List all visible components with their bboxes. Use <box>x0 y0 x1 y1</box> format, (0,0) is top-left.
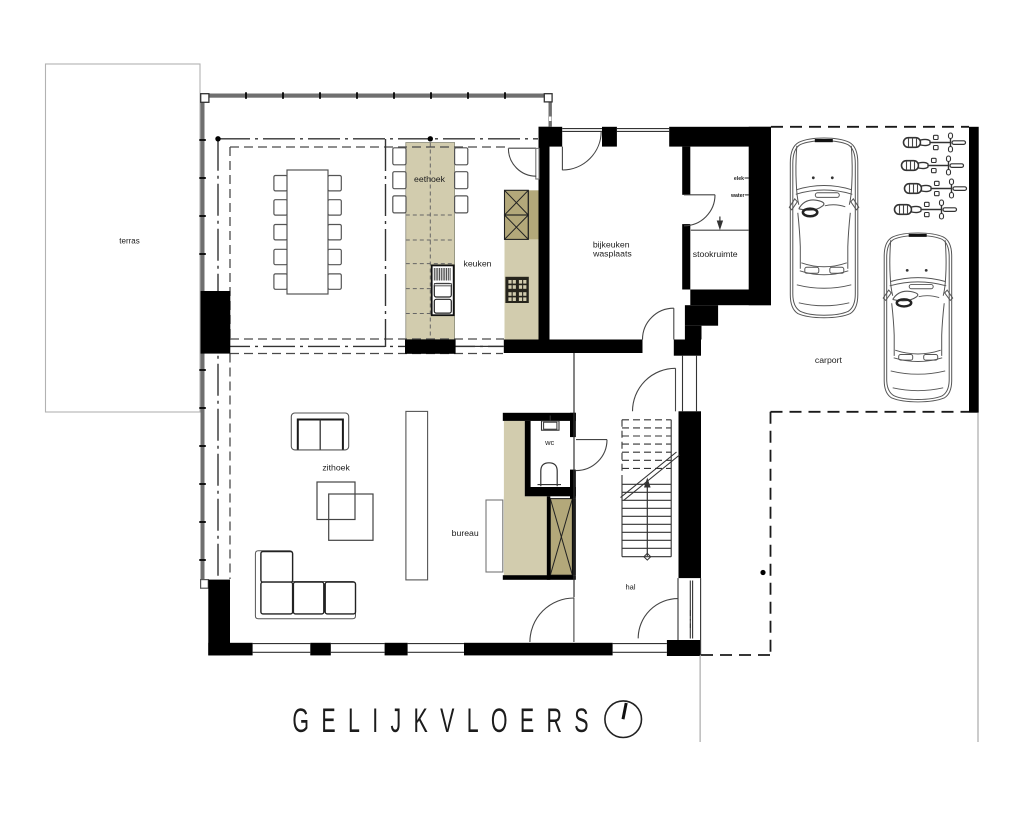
svg-text:carport: carport <box>815 355 843 365</box>
svg-text:zithoek: zithoek <box>322 462 350 472</box>
svg-text:wasplaats: wasplaats <box>592 249 632 259</box>
svg-text:elek: elek <box>734 176 744 182</box>
svg-text:terras: terras <box>119 237 139 246</box>
svg-text:water: water <box>730 193 745 199</box>
svg-text:stookruimte: stookruimte <box>693 249 738 259</box>
svg-text:wc: wc <box>544 438 554 447</box>
svg-text:GELIJKVLOERS: GELIJKVLOERS <box>292 702 600 740</box>
svg-text:hal: hal <box>625 583 635 592</box>
svg-text:eethoek: eethoek <box>414 174 446 184</box>
svg-text:bureau: bureau <box>452 528 479 538</box>
svg-text:keuken: keuken <box>463 259 491 269</box>
